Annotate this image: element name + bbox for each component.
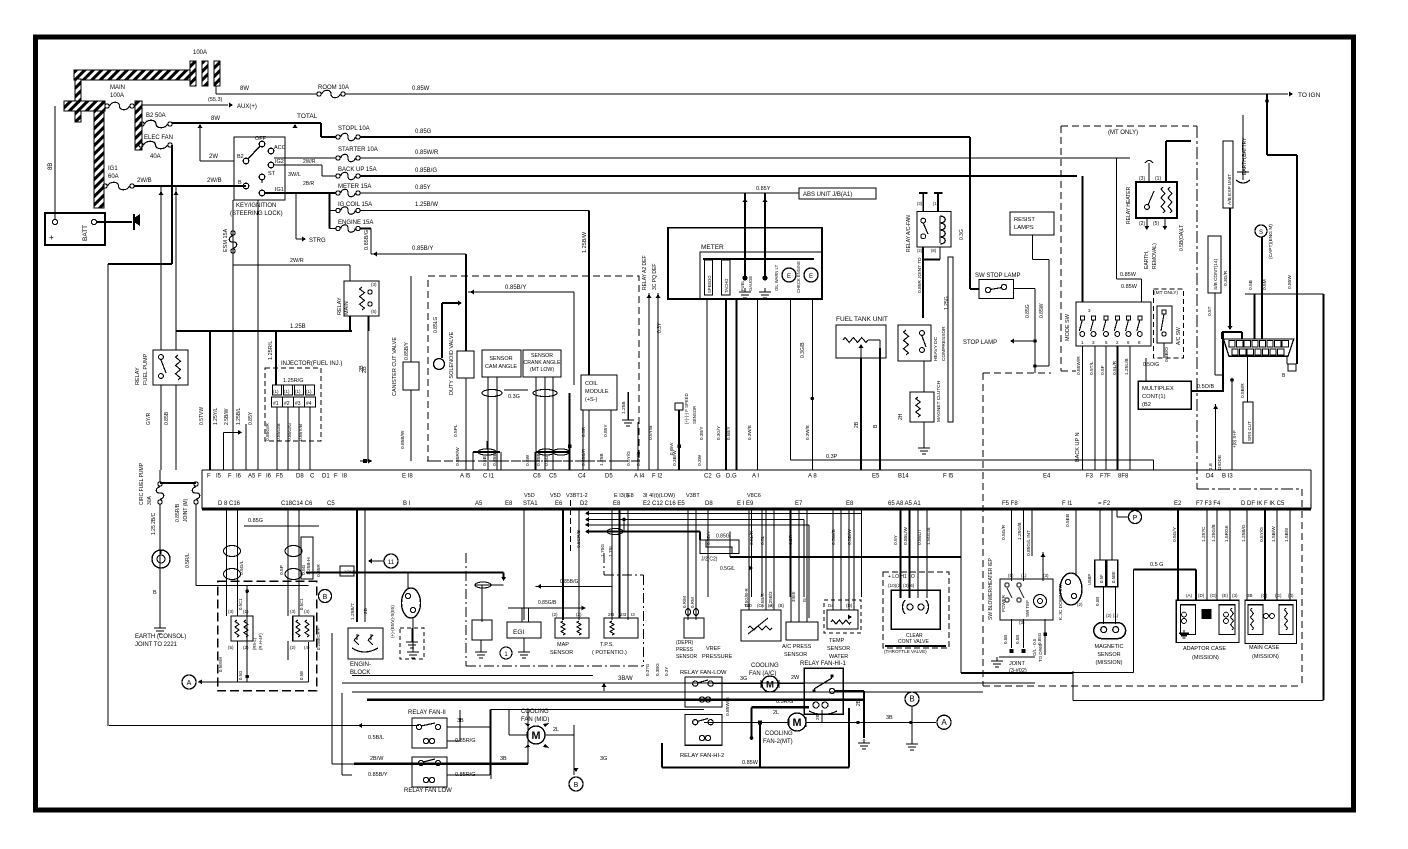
svg-text:V3BT: V3BT [686,493,700,499]
svg-text:B: B [323,594,328,601]
svg-text:3B/W: 3B/W [618,676,633,682]
svg-text:CIRC FUEL PUMP: CIRC FUEL PUMP [139,462,145,505]
svg-text:(4): (4) [304,609,310,614]
svg-text:0.5G: 0.5G [544,455,550,466]
svg-text:0.85B/W: 0.85B/W [400,430,406,449]
svg-text:F5 F8: F5 F8 [1002,501,1018,507]
svg-text:0.3P: 0.3P [826,454,838,460]
svg-text:S: S [1259,230,1263,236]
svg-text:1.75G: 1.75G [600,544,606,557]
svg-text:RELAY: RELAY [135,367,141,385]
svg-text:M: M [793,717,802,729]
svg-text:0.85B/Y: 0.85B/Y [505,285,526,291]
svg-text:E I8: E I8 [402,474,413,480]
svg-text:+ LO H1 LO: + LO H1 LO [888,574,915,580]
svg-text:B: B [153,590,157,596]
svg-text:1.25G/B: 1.25G/B [1211,524,1217,542]
svg-text:0.5R/L: 0.5R/L [185,553,191,568]
svg-text:3I5IE: 3I5IE [791,591,796,602]
svg-text:0.5B: 0.5B [1003,635,1008,644]
svg-text:+(0) S+F: +(0) S+F [1232,430,1237,448]
svg-text:1.25B/T: 1.25B/T [350,603,356,620]
svg-text:0.85B/Y: 0.85B/Y [368,772,388,778]
svg-text:(2): (2) [243,645,249,650]
svg-text:1.5B/W: 1.5B/W [1271,526,1277,542]
svg-text:(2): (2) [768,603,774,608]
svg-text:(5): (5) [228,645,234,650]
svg-text:0.85W: 0.85W [412,86,430,92]
svg-text:1.25R/G: 1.25R/G [283,378,303,384]
svg-text:DIODE: DIODE [1217,455,1223,470]
svg-text:A: A [187,680,192,687]
svg-text:0.85B: 0.85B [492,453,498,466]
svg-text:FUEL TANK UNIT: FUEL TANK UNIT [836,316,888,323]
svg-text:(5): (5) [371,309,377,314]
svg-text:F: F [334,474,338,480]
svg-text:I5: I5 [216,474,222,480]
svg-text:0.5B/W: 0.5B/W [847,529,853,545]
svg-text:3B: 3B [886,715,893,721]
svg-text:2B/W: 2B/W [370,756,384,762]
svg-text:(1): (1) [306,389,312,394]
svg-text:J/2(C2): J/2(C2) [701,557,718,563]
svg-text:0.85B: 0.85B [536,453,542,466]
svg-text:F I2: F I2 [652,474,663,480]
svg-text:0.3W/B: 0.3W/B [805,425,810,440]
svg-text:#2: #2 [284,401,290,407]
svg-text:(3): (3) [1019,620,1025,625]
svg-text:G: G [716,474,721,480]
svg-text:C4: C4 [578,474,586,480]
svg-text:2B: 2B [854,421,860,428]
svg-text:2W/B: 2W/B [207,178,222,184]
svg-text:SENSOR: SENSOR [489,356,512,362]
svg-text:0.5G: 0.5G [238,670,243,680]
svg-text:(+)-(E5/V)-S(E5): (+)-(E5/V)-S(E5) [390,605,395,638]
svg-text:0.5R/G: 0.5R/G [776,699,793,705]
svg-text:30A: 30A [147,495,153,505]
svg-text:(3): (3) [228,609,234,614]
svg-text:0.5T: 0.5T [1207,306,1213,316]
svg-text:EARTH,: EARTH, [1144,251,1150,269]
svg-text:65 A8 A5 A1: 65 A8 A5 A1 [888,501,921,507]
svg-text:A I: A I [752,474,759,480]
svg-text:C I1: C I1 [483,474,495,480]
svg-text:0.85W: 0.85W [742,760,759,766]
svg-text:SENSOR: SENSOR [531,353,553,359]
svg-text:JOINT (M): JOINT (M) [183,498,189,522]
svg-text:D 8 C16: D 8 C16 [218,501,241,507]
svg-text:COIL: COIL [585,381,598,387]
svg-text:1.25G/B: 1.25G/B [1017,522,1023,540]
svg-text:D8: D8 [705,501,713,507]
svg-text:0.85G: 0.85G [716,534,730,540]
svg-text:0.85G/R: 0.85G/R [265,423,271,441]
svg-text:1.5GL/B: 1.5GL/B [926,527,932,545]
svg-text:POWER: POWER [1001,594,1006,612]
svg-text:SENSOR: SENSOR [1097,652,1120,658]
svg-text:0.5Y/G: 0.5Y/G [1259,527,1265,542]
svg-text:RELAY A2 DEF: RELAY A2 DEF [642,255,648,290]
svg-text:(D): (D) [846,603,853,608]
svg-text:(STEERING LOCK): (STEERING LOCK) [230,211,283,217]
svg-text:F7F: F7F [1100,474,1111,480]
svg-text:(A): (A) [1186,593,1193,598]
svg-text:0.85B/G: 0.85B/G [364,230,370,250]
svg-text:ELEC FAN: ELEC FAN [144,135,173,141]
svg-text:D2: D2 [580,501,588,507]
svg-text:0.85W/R: 0.85W/R [415,150,439,156]
svg-text:(3): (3) [371,282,377,287]
svg-text:D.G: D.G [726,474,737,480]
svg-text:11: 11 [388,560,395,566]
svg-text:0.85W: 0.85W [1287,275,1293,289]
svg-text:FAN (MID): FAN (MID) [521,717,549,723]
svg-text:TOTAL: TOTAL [297,113,318,120]
svg-text:ABS UNIT J/B(A1): ABS UNIT J/B(A1) [803,192,852,198]
svg-text:C6: C6 [533,474,541,480]
svg-text:OFF: OFF [255,136,267,142]
svg-text:F: F [258,474,262,480]
svg-text:0.85L/T: 0.85L/T [917,529,923,545]
svg-text:0.5EB: 0.5EB [1065,514,1071,527]
svg-text:0.85Y: 0.85Y [415,185,431,191]
svg-text:0.5B/R: 0.5B/R [1240,383,1246,398]
svg-text:0.3W/B: 0.3W/B [747,425,752,440]
svg-text:SW TEF: SW TEF [1025,600,1030,617]
svg-text:1.25L/B: 1.25L/B [1124,358,1130,375]
svg-text:MAIN CASE: MAIN CASE [1249,645,1280,651]
svg-text:3B: 3B [1247,593,1253,598]
svg-text:F3: F3 [1086,474,1094,480]
svg-text:8B: 8B [48,163,54,170]
svg-text:(MISSION): (MISSION) [1192,655,1219,661]
svg-text:D4: D4 [1206,474,1214,480]
svg-text:CANISTER CUT VALVE: CANISTER CUT VALVE [392,337,398,396]
svg-text:0.85R/W: 0.85R/W [455,447,461,466]
svg-text:KEY/IGNITION: KEY/IGNITION [236,203,276,209]
svg-text:PRESS: PRESS [676,647,694,653]
svg-text:0.25B/CR-F: 0.25B/CR-F [316,627,321,650]
svg-text:SRS CUT: SRS CUT [1247,421,1252,441]
svg-text:F: F [207,474,211,480]
svg-text:0.5BE: 0.5BE [1111,571,1116,583]
svg-text:(MT ONLY): (MT ONLY) [1108,130,1138,136]
svg-text:CONT VALVE: CONT VALVE [898,639,930,645]
svg-text:MAIN: MAIN [110,85,125,91]
svg-text:B I3: B I3 [1222,474,1233,480]
svg-text:(3): (3) [290,609,296,614]
svg-text:INJECTOR(FUEL INJ.): INJECTOR(FUEL INJ.) [281,361,342,367]
svg-text:BATT: BATT [82,225,89,241]
svg-text:3B: 3B [457,718,464,724]
svg-text:2L: 2L [553,727,559,733]
svg-text:2W/R: 2W/R [290,258,304,264]
svg-text:(3): (3) [917,201,923,206]
svg-text:0.3G: 0.3G [508,394,520,400]
svg-text:2I6: 2I6 [608,612,615,617]
svg-text:0.85B/R: 0.85B/R [581,448,587,466]
svg-text:0.85W: 0.85W [1039,303,1045,318]
svg-text:TO IGN: TO IGN [1298,92,1321,99]
svg-text:0.5 G: 0.5 G [1150,562,1163,568]
svg-text:(1): (1) [933,201,939,206]
svg-text:0.R/M: 0.R/M [682,596,687,608]
svg-text:C18C14 C6: C18C14 C6 [281,501,313,507]
svg-text:0.85W: 0.85W [1121,284,1138,290]
svg-text:0.85R JOINT TD: 0.85R JOINT TD [917,257,923,293]
svg-text:E: E [787,274,791,280]
svg-text:(CAPT)(ENG M): (CAPT)(ENG M) [1268,224,1274,259]
svg-text:0.5M: 0.5M [1262,279,1268,290]
svg-text:0.5C1: 0.5C1 [299,598,304,610]
svg-text:AUX(+): AUX(+) [237,104,257,110]
svg-text:CRANK ANGLE: CRANK ANGLE [524,360,561,366]
svg-text:STOP LAMP: STOP LAMP [963,340,997,346]
svg-text:(MISSION): (MISSION) [1252,654,1279,660]
svg-text:3G: 3G [740,676,747,682]
svg-text:0.85Y: 0.85Y [248,411,254,425]
svg-text:O/L - 0.5: O/L - 0.5 [1032,638,1037,656]
svg-text:E2: E2 [1174,501,1182,507]
svg-text:(55.3): (55.3) [208,97,223,103]
svg-text:0.85B/Y: 0.85B/Y [404,342,410,360]
svg-text:0.85G/G: 0.85G/G [287,423,293,441]
svg-text:E8: E8 [505,501,513,507]
svg-text:0.5R: 0.5R [788,534,794,545]
svg-text:T10: T10 [744,603,752,608]
svg-text:I6: I6 [236,474,242,480]
svg-text:C5: C5 [549,474,557,480]
svg-text:0.5Y/B: 0.5Y/B [636,452,642,466]
svg-text:(C): (C) [1261,593,1268,598]
svg-text:1.25B/G: 1.25B/G [1241,524,1247,542]
svg-text:COOLING: COOLING [765,731,793,737]
svg-text:TO D#60: TO D#60 [1038,643,1043,662]
svg-text:0.5B: 0.5B [1248,280,1254,290]
svg-text:(+S-): (+S-) [585,397,598,403]
svg-text:1.5B/8: 1.5B/8 [1284,528,1290,542]
svg-text:0.5W/M: 0.5W/M [218,657,223,672]
svg-text:SENSOR: SENSOR [692,406,697,424]
svg-text:2W: 2W [791,675,800,681]
svg-text:0.RM: 0.RM [690,597,695,608]
svg-text:F I1: F I1 [1062,501,1073,507]
svg-text:2B: 2B [856,699,862,706]
svg-text:D1: D1 [322,474,330,480]
svg-text:A/B EXP UNIT: A/B EXP UNIT [1227,174,1233,205]
svg-text:40A: 40A [150,154,161,160]
svg-text:1C6(Y): 1C6(Y) [344,569,357,574]
svg-text:0.85R/B: 0.85R/B [175,503,181,522]
svg-text:GY/R: GY/R [146,412,152,425]
svg-text:D5: D5 [605,474,613,480]
svg-text:F I5: F I5 [943,474,954,480]
svg-text:STOPL 10A: STOPL 10A [338,126,370,132]
svg-text:STA1: STA1 [523,501,538,507]
svg-text:A5: A5 [475,501,483,507]
svg-text:MULTIPLEX: MULTIPLEX [1142,386,1174,392]
svg-text:A I4: A I4 [634,474,645,480]
svg-text:0.5Y/G: 0.5Y/G [626,451,632,466]
svg-text:0.85B/G: 0.85B/G [415,168,437,174]
svg-text:0.3B/Y: 0.3B/Y [699,426,704,440]
svg-text:(1): (1) [243,609,249,614]
svg-text:(MT LOW): (MT LOW) [530,367,554,373]
svg-text:1.25Y/L: 1.25Y/L [213,408,219,425]
svg-text:RELAY: RELAY [337,297,343,315]
svg-text:C: C [310,474,315,480]
svg-text:ROOM 10A: ROOM 10A [318,85,349,91]
svg-text:E6: E6 [555,501,563,507]
svg-text:1.25G: 1.25G [944,296,950,310]
svg-text:C2: C2 [704,474,712,480]
svg-text:RELAY HEATER: RELAY HEATER [1126,186,1132,224]
svg-text:0.5C1: 0.5C1 [238,598,243,610]
svg-text:(1): (1) [1021,573,1027,578]
svg-text:0.85Y: 0.85Y [603,424,609,437]
svg-text:2W: 2W [209,154,218,160]
svg-text:F: F [228,474,232,480]
svg-text:A 8: A 8 [808,474,817,480]
svg-text:0.5L/R: 0.5L/R [749,530,755,545]
svg-text:(2) (1): (2) (1) [1106,613,1119,618]
svg-text:B: B [909,695,914,704]
svg-text:1.25?C: 1.25?C [1201,526,1207,542]
svg-text:0.5P: 0.5P [279,565,285,575]
svg-text:2I3: 2I3 [620,612,627,617]
svg-text:0.5G/L: 0.5G/L [720,566,735,572]
svg-text:TEMP: TEMP [829,638,845,644]
svg-text:3C PQ DEF: 3C PQ DEF [652,264,658,290]
svg-text:STRG: STRG [309,238,326,244]
svg-text:3I 4I(t)(LOW): 3I 4I(t)(LOW) [643,493,675,499]
svg-text:(R.H-4F): (R.H-4F) [258,633,263,650]
svg-text:SENSOR: SENSOR [784,652,807,658]
svg-text:HEAVY DC: HEAVY DC [933,336,939,361]
svg-text:STARTER 10A: STARTER 10A [338,147,378,153]
svg-text:0.5F: 0.5F [1099,574,1104,583]
svg-text:(E): (E) [1222,593,1229,598]
svg-text:0.85G/B: 0.85G/B [538,600,557,606]
svg-text:(5): (5) [1153,221,1159,227]
svg-text:2.5B/W: 2.5B/W [224,408,230,425]
svg-text:RELAY FAN-II: RELAY FAN-II [408,710,446,716]
svg-text:SENSOR: SENSOR [676,654,698,660]
svg-text:0.85G: 0.85G [415,129,432,135]
svg-text:0.3B/W: 0.3B/W [672,450,678,466]
svg-text:GAUGE: GAUGE [748,276,753,291]
svg-text:(D): (D) [1198,593,1205,598]
svg-text:0.5B: 0.5B [482,456,488,466]
svg-text:B I: B I [403,501,411,507]
svg-text:(2): (2) [290,645,296,650]
svg-text:(B): (B) [778,603,785,608]
svg-text:IG1: IG1 [108,166,118,172]
svg-text:RELAY A/C-FAN: RELAY A/C-FAN [906,215,912,252]
svg-text:(3): (3) [1232,593,1238,598]
svg-text:1.8: 1.8 [1208,463,1214,470]
svg-text:E4: E4 [1043,474,1051,480]
svg-text:F7 F3 F4: F7 F3 F4 [1196,501,1221,507]
svg-text:COOLING: COOLING [521,709,549,715]
svg-text:SENSOR: SENSOR [827,646,850,652]
svg-text:#3: #3 [295,401,301,407]
svg-text:EGI: EGI [513,629,524,636]
svg-text:METER: METER [701,244,724,251]
svg-text:0.85G: 0.85G [1037,632,1042,645]
svg-text:SW STOP LAMP: SW STOP LAMP [975,273,1020,279]
svg-text:E I E9: E I E9 [737,501,754,507]
svg-text:(THROTTLE VALVE): (THROTTLE VALVE) [884,649,927,654]
svg-text:FUEL PUMP: FUEL PUMP [143,353,149,385]
svg-text:U5BP: U5BP [1087,574,1092,585]
svg-text:1.25B/W: 1.25B/W [582,231,588,253]
svg-text:E8: E8 [613,501,621,507]
svg-text:T.P.S.: T.P.S. [600,642,614,648]
svg-text:(R5-L): (R5-L) [252,637,257,650]
svg-text:(2): (2) [552,612,558,617]
svg-text:RELAY FAN-HI-2: RELAY FAN-HI-2 [680,753,724,759]
svg-text:0.5B/L: 0.5B/L [368,735,384,741]
svg-text:#1: #1 [273,401,279,407]
svg-text:V5D: V5D [524,493,535,499]
svg-text:0.5O/G: 0.5O/G [1143,362,1159,368]
svg-text:(1): (1) [273,389,279,394]
svg-text:0.3BG: 0.3BG [655,663,660,676]
svg-text:100A: 100A [193,50,207,56]
svg-text:8W: 8W [240,86,249,92]
svg-text:0.85G/B: 0.85G/B [276,423,282,441]
svg-text:0.5B/Y: 0.5B/Y [706,530,712,545]
svg-text:M: M [766,680,774,691]
svg-text:A/C PRESS: A/C PRESS [782,644,812,650]
svg-text:EARTH (CONSOL): EARTH (CONSOL) [135,634,186,640]
svg-text:MODULE: MODULE [585,389,609,395]
svg-text:VREF: VREF [706,646,721,652]
svg-text:B2: B2 [237,154,244,160]
svg-text:(3): (3) [1043,573,1049,578]
svg-text:IG2: IG2 [275,159,284,165]
svg-text:= F2: = F2 [1098,501,1111,507]
svg-text:(1): (1) [1155,176,1161,182]
svg-text:E8: E8 [627,493,634,499]
svg-text:( POTENTIO.): ( POTENTIO.) [592,650,627,656]
svg-text:0.3G: 0.3G [959,229,965,240]
svg-text:C5: C5 [327,501,335,507]
svg-text:I8: I8 [342,474,348,480]
svg-text:TACHO: TACHO [724,278,729,293]
svg-text:8F8: 8F8 [1118,474,1129,480]
svg-text:E7: E7 [795,501,803,507]
svg-text:0.85W/R: 0.85W/R [1076,356,1082,375]
svg-text:D8: D8 [296,474,304,480]
svg-text:0.5TVW: 0.5TVW [199,407,205,425]
svg-text:CHECK ENGINE: CHECK ENGINE [796,261,801,293]
svg-text:0.5G/R: 0.5G/R [1001,524,1007,540]
svg-text:I5: I5 [802,598,807,602]
svg-text:RELAY FAN LOW: RELAY FAN LOW [404,788,452,794]
svg-text:0.5B: 0.5B [1015,635,1020,644]
svg-text:F5: F5 [276,474,284,480]
svg-text:E: E [809,274,813,280]
svg-text:2W/R: 2W/R [303,159,316,165]
svg-text:I3: I3 [631,612,635,617]
svg-text:1.25B: 1.25B [290,324,306,330]
svg-text:CONT(1): CONT(1) [1142,394,1166,400]
svg-text:0.5W/B: 0.5W/B [831,529,837,545]
svg-text:0.85Y/B: 0.85Y/B [298,424,304,441]
